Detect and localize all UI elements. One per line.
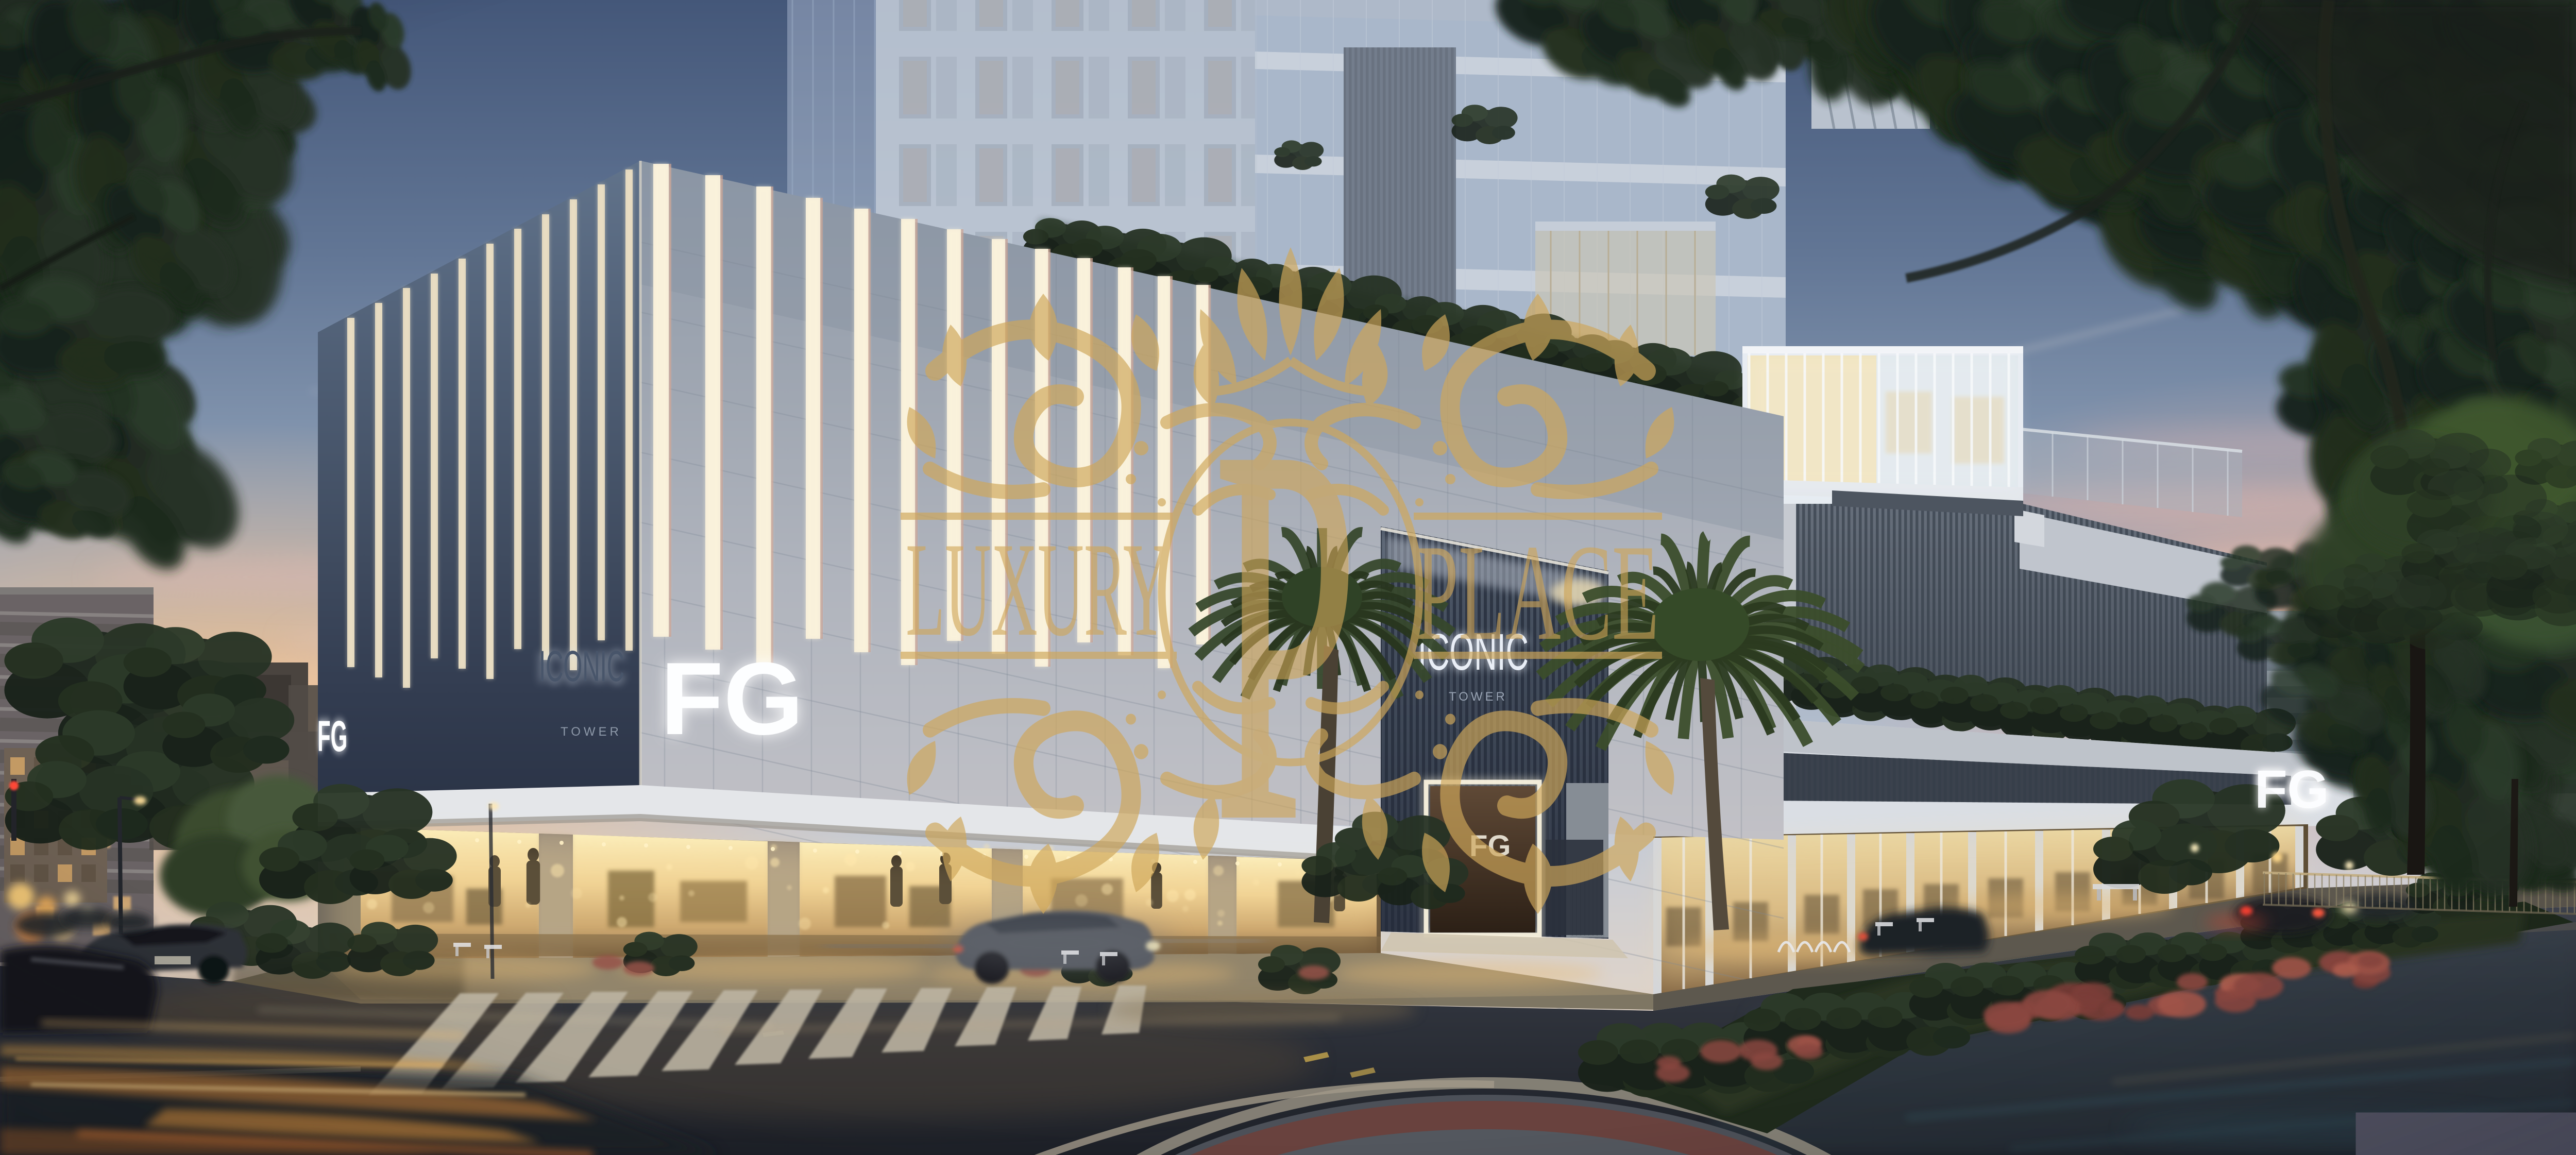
svg-text:PLACE: PLACE — [1416, 516, 1659, 669]
svg-text:P: P — [1214, 336, 1358, 932]
svg-text:LUXURY: LUXURY — [906, 515, 1170, 664]
